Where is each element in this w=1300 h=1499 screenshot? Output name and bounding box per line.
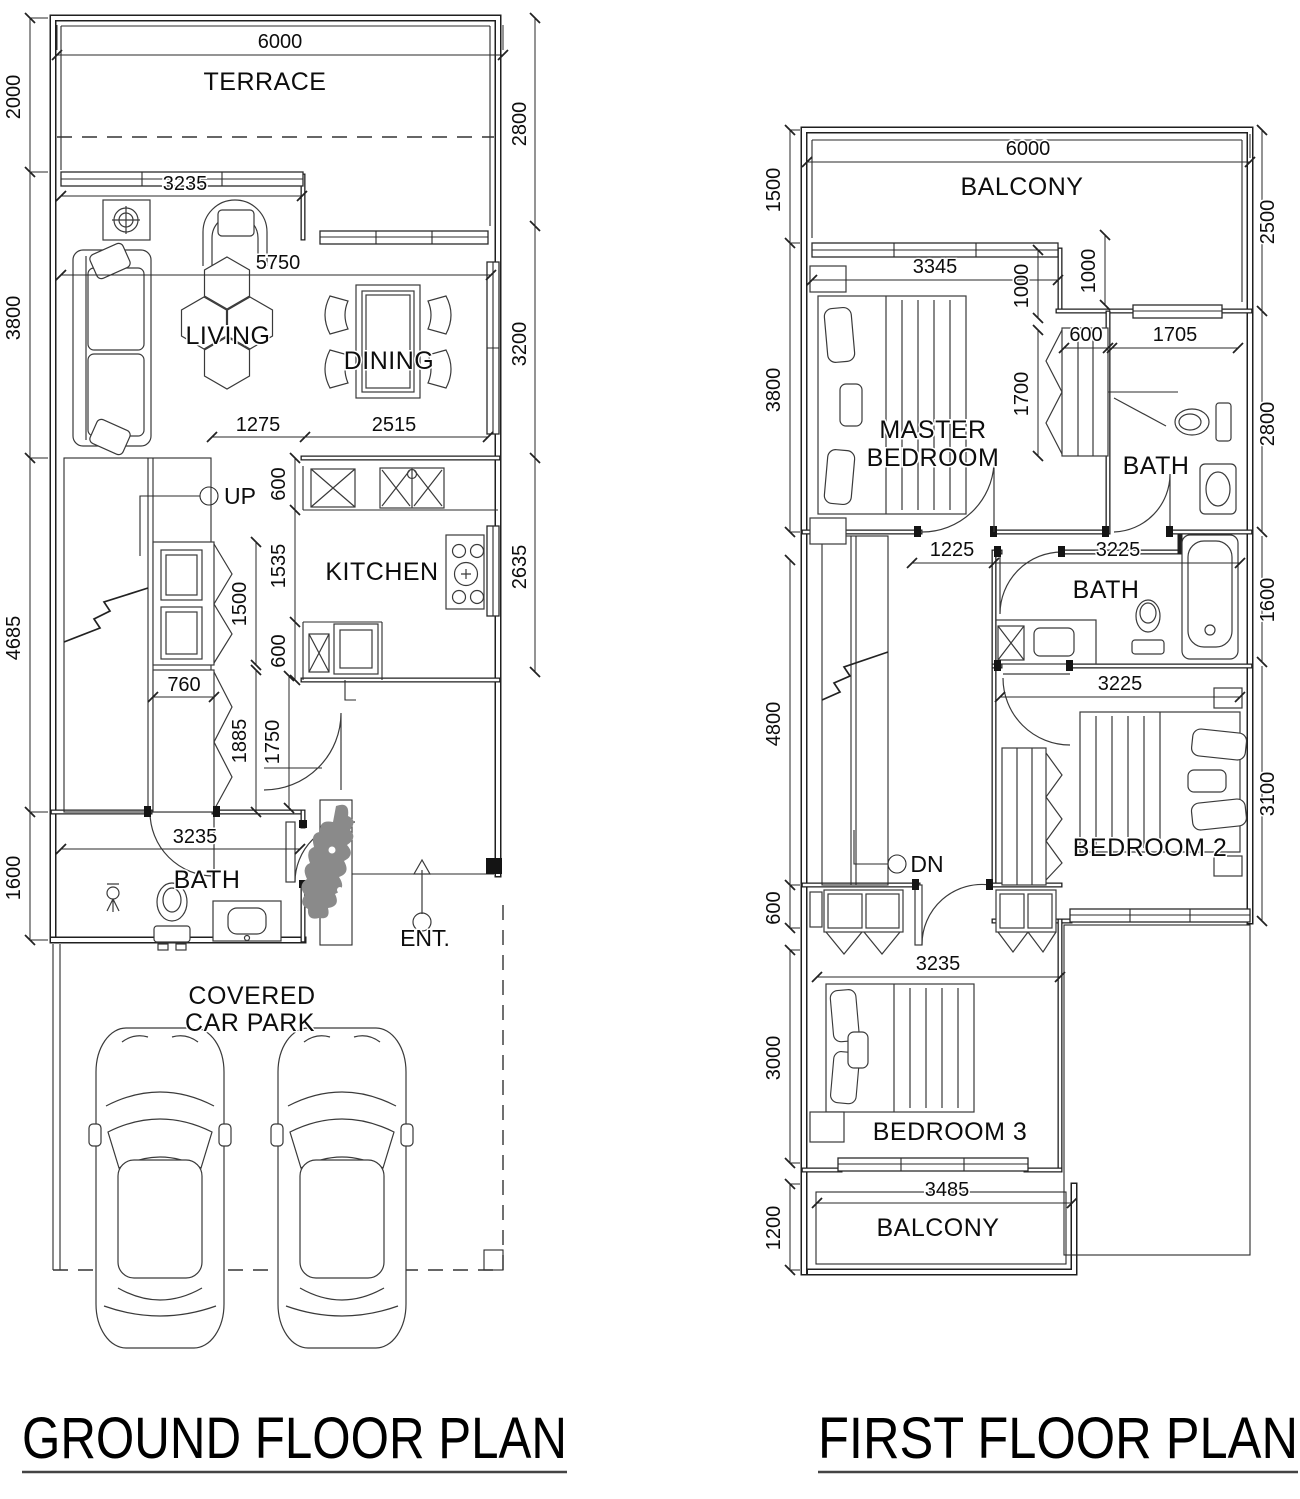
sofa-icon (73, 250, 151, 446)
dim-label: 1000 (1078, 249, 1100, 294)
dim-label: 3485 (925, 1179, 970, 1201)
dim-label: 3800 (763, 368, 785, 413)
toilet-icon (1175, 409, 1209, 435)
dim-label: 3800 (3, 296, 25, 341)
dim-label: 3000 (763, 1036, 785, 1081)
room-label-kitchen: KITCHEN (325, 558, 438, 586)
room-label-bath: BATH (174, 866, 241, 894)
room-label-master-2: BEDROOM (867, 444, 1000, 472)
ground-floor-title: GROUND FLOOR PLAN (22, 1406, 567, 1471)
gf-carpark (53, 905, 503, 1348)
dim-label: 600 (1069, 324, 1102, 346)
room-label-bedroom2: BEDROOM 2 (1073, 834, 1228, 862)
gf-interior-walls (53, 458, 502, 940)
wardrobe-icon (1002, 748, 1046, 885)
ff-master-bedroom (810, 266, 966, 544)
dim-label: 1600 (1257, 578, 1279, 623)
down-label: DN (910, 851, 943, 877)
room-label-master-1: MASTER (879, 416, 986, 444)
entry-arrow-icon (414, 860, 430, 914)
closet-icon (1062, 328, 1108, 456)
dim-label: 1500 (763, 168, 785, 213)
plant-icon (301, 805, 353, 919)
sheet-titles: GROUND FLOOR PLAN FIRST FLOOR PLAN (22, 1406, 1298, 1472)
room-label-balcony-top: BALCONY (961, 173, 1084, 201)
floor-plan-drawing: 6000 2000 3800 4685 1600 2800 3200 2635 … (0, 0, 1300, 1499)
dim-label: 3200 (509, 322, 531, 367)
dim-label: 3225 (1096, 539, 1141, 561)
room-label-terrace: TERRACE (204, 68, 327, 96)
dim-label: 1225 (930, 539, 975, 561)
room-label-dining: DINING (344, 347, 435, 375)
fridge-icon (334, 624, 378, 674)
floor-plan-sheet: 6000 2000 3800 4685 1600 2800 3200 2635 … (0, 0, 1300, 1499)
wardrobe-icon (824, 890, 903, 932)
room-label-carpark-1: COVERED (188, 982, 315, 1010)
dim-label: 1275 (236, 414, 281, 436)
toilet-icon (1136, 600, 1160, 632)
dim-label: 760 (167, 674, 200, 696)
room-label-living: LIVING (186, 322, 271, 350)
wardrobe-icon (996, 890, 1056, 932)
ff-stairs (822, 536, 906, 885)
dim-label: 3100 (1257, 772, 1279, 817)
dim-label: 600 (268, 467, 290, 500)
dim-label: 3235 (173, 826, 218, 848)
dim-label: 1885 (229, 719, 251, 764)
ff-bedroom3 (810, 884, 1056, 1142)
first-floor-plan: 6000 1500 3800 4800 600 3000 1200 2500 2… (763, 130, 1279, 1272)
dim-label: 2500 (1257, 200, 1279, 245)
entry-door (286, 822, 295, 882)
up-label: UP (224, 483, 256, 509)
room-label-balcony-bottom: BALCONY (877, 1214, 1000, 1242)
dim-label: 6000 (258, 31, 303, 53)
dim-label: 2635 (509, 545, 531, 590)
dim-label: 1705 (1153, 324, 1198, 346)
dim-label: 5750 (256, 252, 301, 274)
room-label-bath1: BATH (1123, 452, 1190, 480)
ff-master-bath (1046, 328, 1236, 532)
dim-label: 2800 (509, 102, 531, 147)
gf-dimensions: 6000 2000 3800 4685 1600 2800 3200 2635 … (3, 18, 535, 940)
first-floor-title: FIRST FLOOR PLAN (818, 1406, 1298, 1471)
dim-label: 3345 (913, 256, 958, 278)
dim-label: 1000 (1011, 264, 1033, 309)
dim-label: 3225 (1098, 673, 1143, 695)
dim-label: 4685 (3, 616, 25, 661)
dim-label: 600 (763, 891, 785, 924)
dim-label: 1500 (229, 582, 251, 627)
dim-label: 600 (268, 634, 290, 667)
dim-label: 6000 (1006, 138, 1051, 160)
entrance-label: ENT. (400, 925, 450, 951)
dim-label: 2000 (3, 75, 25, 120)
ground-floor-plan: 6000 2000 3800 4685 1600 2800 3200 2635 … (3, 18, 535, 1348)
room-label-carpark-2: CAR PARK (185, 1009, 315, 1037)
dim-label: 1700 (1011, 372, 1033, 417)
room-label-bath2: BATH (1073, 576, 1140, 604)
dim-label: 1600 (3, 856, 25, 901)
chair-icon (325, 296, 348, 334)
shower-icon (107, 887, 119, 899)
gf-entry (301, 800, 431, 945)
dim-label: 3235 (916, 953, 961, 975)
dim-label: 1535 (268, 544, 290, 589)
room-label-bedroom3: BEDROOM 3 (873, 1118, 1028, 1146)
dim-label: 1750 (262, 720, 284, 765)
dim-label: 2515 (372, 414, 417, 436)
dim-label: 1200 (763, 1206, 785, 1251)
ff-roof (1064, 925, 1250, 1255)
dim-label: 2800 (1257, 402, 1279, 447)
dim-label: 3235 (163, 173, 208, 195)
dim-label: 4800 (763, 702, 785, 747)
